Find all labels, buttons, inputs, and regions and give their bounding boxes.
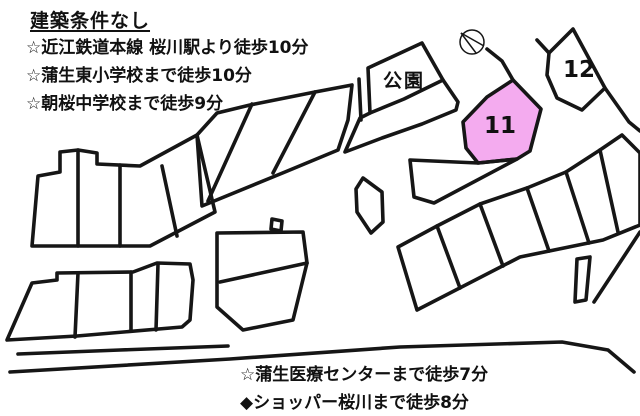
note-medical-center: ☆蒲生医療センターまで徒歩7分 [240, 361, 488, 389]
mid-lower-block-divider [220, 263, 307, 282]
park-sliver-line [359, 79, 361, 120]
plot-12-label: 12 [563, 57, 595, 83]
bottom-left-block-dividers [75, 264, 158, 337]
mid-pentagon-parcel [356, 178, 383, 233]
plot-11-label: 11 [484, 113, 516, 139]
plot-map-image: 建築条件なし ☆近江鉄道本線 桜川駅より徒歩10分 ☆蒲生東小学校まで徒歩10分… [0, 0, 640, 416]
compass-needle-line [461, 33, 484, 46]
stub-parcel [575, 257, 590, 302]
access-note-elementary: ☆蒲生東小学校まで徒歩10分 [26, 62, 308, 90]
strip-block-lower-dividers [437, 150, 618, 288]
park-block [345, 43, 458, 152]
bottom-road-short-line [18, 346, 228, 354]
plot-12-tick [537, 40, 549, 53]
access-note-train: ☆近江鉄道本線 桜川駅より徒歩10分 [26, 34, 308, 62]
bottom-notes: ☆蒲生医療センターまで徒歩7分 ◆ショッパー桜川まで徒歩8分 [240, 361, 488, 416]
note-shopping: ◆ショッパー桜川まで徒歩8分 [240, 389, 488, 416]
right-road-edge [594, 232, 640, 302]
road-edge-right-of-12 [605, 88, 640, 131]
block-a-outline [32, 135, 215, 246]
plot-11-stem [487, 49, 513, 80]
compass-icon [460, 30, 484, 54]
bottom-left-block [7, 263, 193, 340]
road-notch-square [271, 219, 282, 231]
page-title: 建築条件なし [30, 6, 150, 33]
park-label: 公園 [383, 66, 425, 93]
access-note-junior-high: ☆朝桜中学校まで徒歩9分 [26, 90, 308, 118]
access-notes: ☆近江鉄道本線 桜川駅より徒歩10分 ☆蒲生東小学校まで徒歩10分 ☆朝桜中学校… [26, 34, 308, 118]
